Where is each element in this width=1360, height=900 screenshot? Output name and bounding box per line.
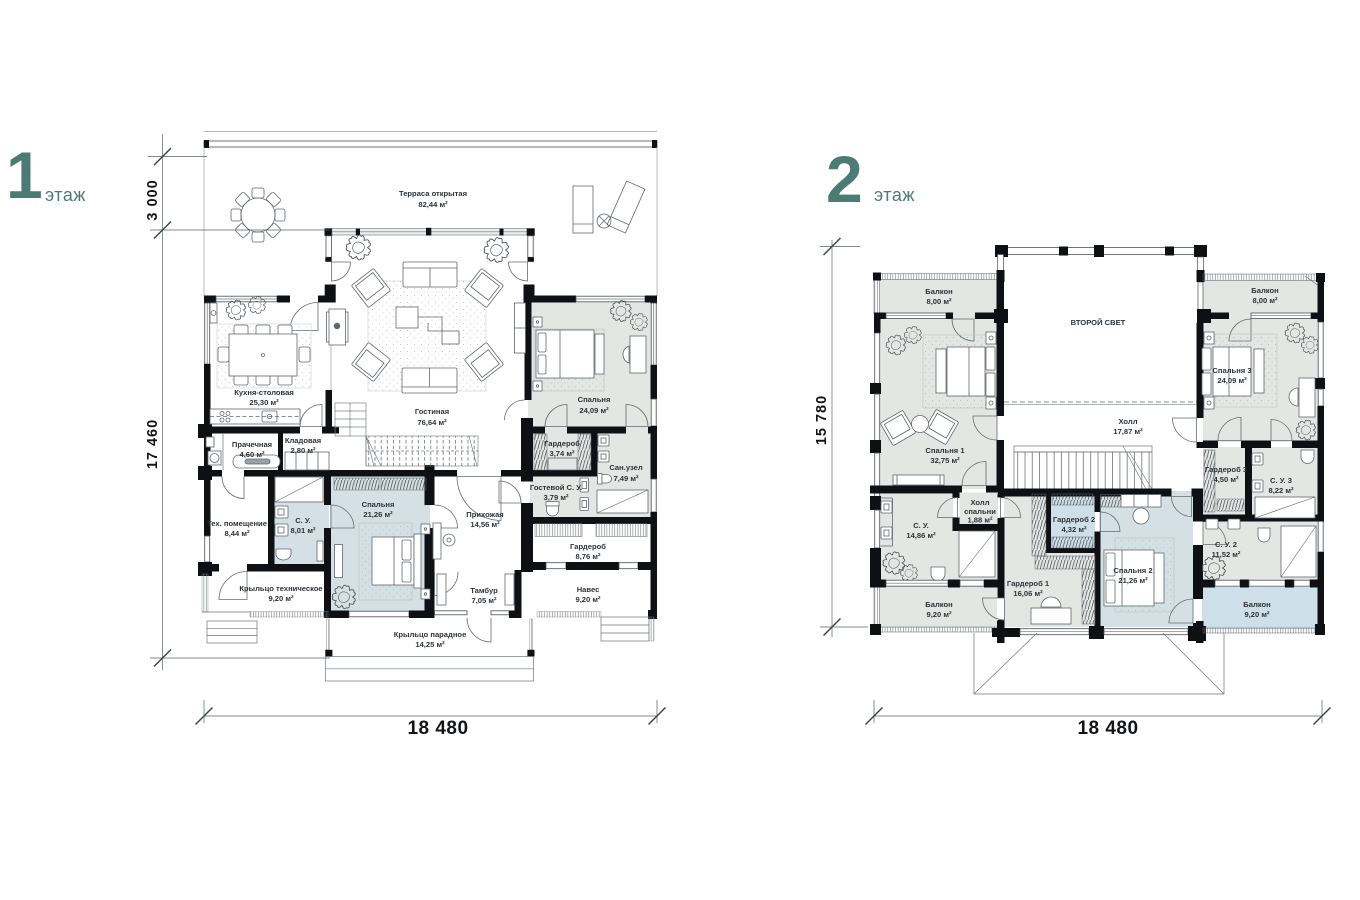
svg-text:9,20 м²: 9,20 м²: [268, 594, 294, 603]
svg-text:Гардероб 3: Гардероб 3: [1205, 465, 1247, 474]
svg-text:Спальня 2: Спальня 2: [1113, 566, 1152, 575]
svg-text:Гостиная: Гостиная: [415, 407, 449, 416]
svg-text:Сан.узел: Сан.узел: [609, 463, 643, 472]
svg-text:Крыльцо парадное: Крыльцо парадное: [394, 630, 467, 639]
svg-text:Гардероб: Гардероб: [570, 542, 606, 551]
svg-text:21,26 м²: 21,26 м²: [1118, 576, 1148, 585]
svg-text:21,26 м²: 21,26 м²: [363, 510, 393, 519]
svg-text:Кухня-столовая: Кухня-столовая: [234, 388, 294, 397]
svg-text:4,60 м²: 4,60 м²: [239, 450, 265, 459]
svg-text:32,75 м²: 32,75 м²: [930, 456, 960, 465]
svg-text:С. У.: С. У.: [295, 516, 311, 525]
svg-text:Спальня 1: Спальня 1: [925, 446, 965, 455]
svg-text:Кладовая: Кладовая: [285, 436, 321, 445]
svg-text:2: 2: [826, 142, 863, 216]
svg-text:Спальня: Спальня: [362, 500, 395, 509]
svg-text:Навес: Навес: [577, 585, 600, 594]
svg-text:8,01 м²: 8,01 м²: [290, 526, 316, 535]
svg-text:3 000: 3 000: [145, 179, 161, 220]
svg-text:Терраса открытая: Терраса открытая: [399, 189, 467, 198]
svg-text:4,32 м²: 4,32 м²: [1061, 525, 1087, 534]
svg-text:4,50 м²: 4,50 м²: [1213, 475, 1239, 484]
svg-text:24,09 м²: 24,09 м²: [1217, 376, 1247, 385]
svg-text:9,20 м²: 9,20 м²: [926, 610, 952, 619]
svg-text:2,80 м²: 2,80 м²: [290, 446, 316, 455]
svg-text:1,88 м²: 1,88 м²: [967, 516, 993, 525]
svg-text:16,06 м²: 16,06 м²: [1013, 589, 1043, 598]
svg-text:24,09 м²: 24,09 м²: [579, 406, 609, 415]
svg-text:Балкон: Балкон: [925, 600, 953, 609]
svg-text:9,20 м²: 9,20 м²: [1244, 610, 1270, 619]
svg-text:9,20 м²: 9,20 м²: [575, 595, 601, 604]
svg-text:15 780: 15 780: [814, 395, 830, 445]
svg-text:этаж: этаж: [45, 185, 86, 205]
svg-text:Балкон: Балкон: [1243, 600, 1271, 609]
svg-text:25,30 м²: 25,30 м²: [249, 398, 279, 407]
svg-text:3,74 м²: 3,74 м²: [549, 449, 575, 458]
svg-text:18 480: 18 480: [407, 718, 468, 739]
svg-text:8,22 м²: 8,22 м²: [1268, 486, 1294, 495]
svg-text:7,05 м²: 7,05 м²: [471, 596, 497, 605]
svg-text:Гардероб: Гардероб: [544, 439, 580, 448]
svg-text:8,00 м²: 8,00 м²: [926, 297, 952, 306]
svg-text:18 480: 18 480: [1077, 718, 1138, 739]
svg-text:Холл: Холл: [1118, 417, 1137, 426]
svg-text:Балкон: Балкон: [925, 287, 953, 296]
svg-text:этаж: этаж: [874, 185, 915, 205]
svg-text:Гардероб 1: Гардероб 1: [1007, 579, 1050, 588]
svg-text:С. У. 3: С. У. 3: [1270, 476, 1292, 485]
svg-text:Спальня: Спальня: [578, 395, 611, 404]
svg-text:Гостевой С. У.: Гостевой С. У.: [530, 483, 582, 492]
svg-text:7,49 м²: 7,49 м²: [613, 474, 639, 483]
svg-text:Балкон: Балкон: [1251, 286, 1279, 295]
svg-text:ВТОРОЙ СВЕТ: ВТОРОЙ СВЕТ: [1071, 318, 1126, 327]
svg-text:82,44 м²: 82,44 м²: [418, 200, 448, 209]
svg-text:Прихожая: Прихожая: [466, 510, 503, 519]
svg-text:8,44 м²: 8,44 м²: [224, 529, 250, 538]
svg-text:Гардероб 2: Гардероб 2: [1053, 515, 1095, 524]
svg-text:11,52 м²: 11,52 м²: [1212, 550, 1241, 559]
svg-text:Крыльцо техническое: Крыльцо техническое: [239, 584, 322, 593]
svg-text:76,64 м²: 76,64 м²: [417, 418, 447, 427]
svg-text:С. У.: С. У.: [913, 521, 929, 530]
svg-text:17 460: 17 460: [145, 419, 161, 469]
svg-text:Прачечная: Прачечная: [232, 440, 272, 449]
svg-text:Спальня 3: Спальня 3: [1212, 366, 1251, 375]
svg-text:Тамбур: Тамбур: [470, 586, 498, 595]
svg-text:С. У. 2: С. У. 2: [1215, 540, 1237, 549]
svg-text:14,56 м²: 14,56 м²: [470, 520, 500, 529]
svg-text:1: 1: [6, 138, 43, 212]
svg-text:14,25 м²: 14,25 м²: [415, 640, 445, 649]
svg-text:17,87 м²: 17,87 м²: [1113, 427, 1143, 436]
svg-text:3,79 м²: 3,79 м²: [543, 493, 569, 502]
svg-text:8,76 м²: 8,76 м²: [575, 552, 601, 561]
svg-text:Тех. помещение: Тех. помещение: [207, 519, 267, 528]
svg-text:14,86 м²: 14,86 м²: [906, 531, 936, 540]
svg-text:8,00 м²: 8,00 м²: [1252, 296, 1278, 305]
svg-text:Холл: Холл: [970, 498, 989, 507]
